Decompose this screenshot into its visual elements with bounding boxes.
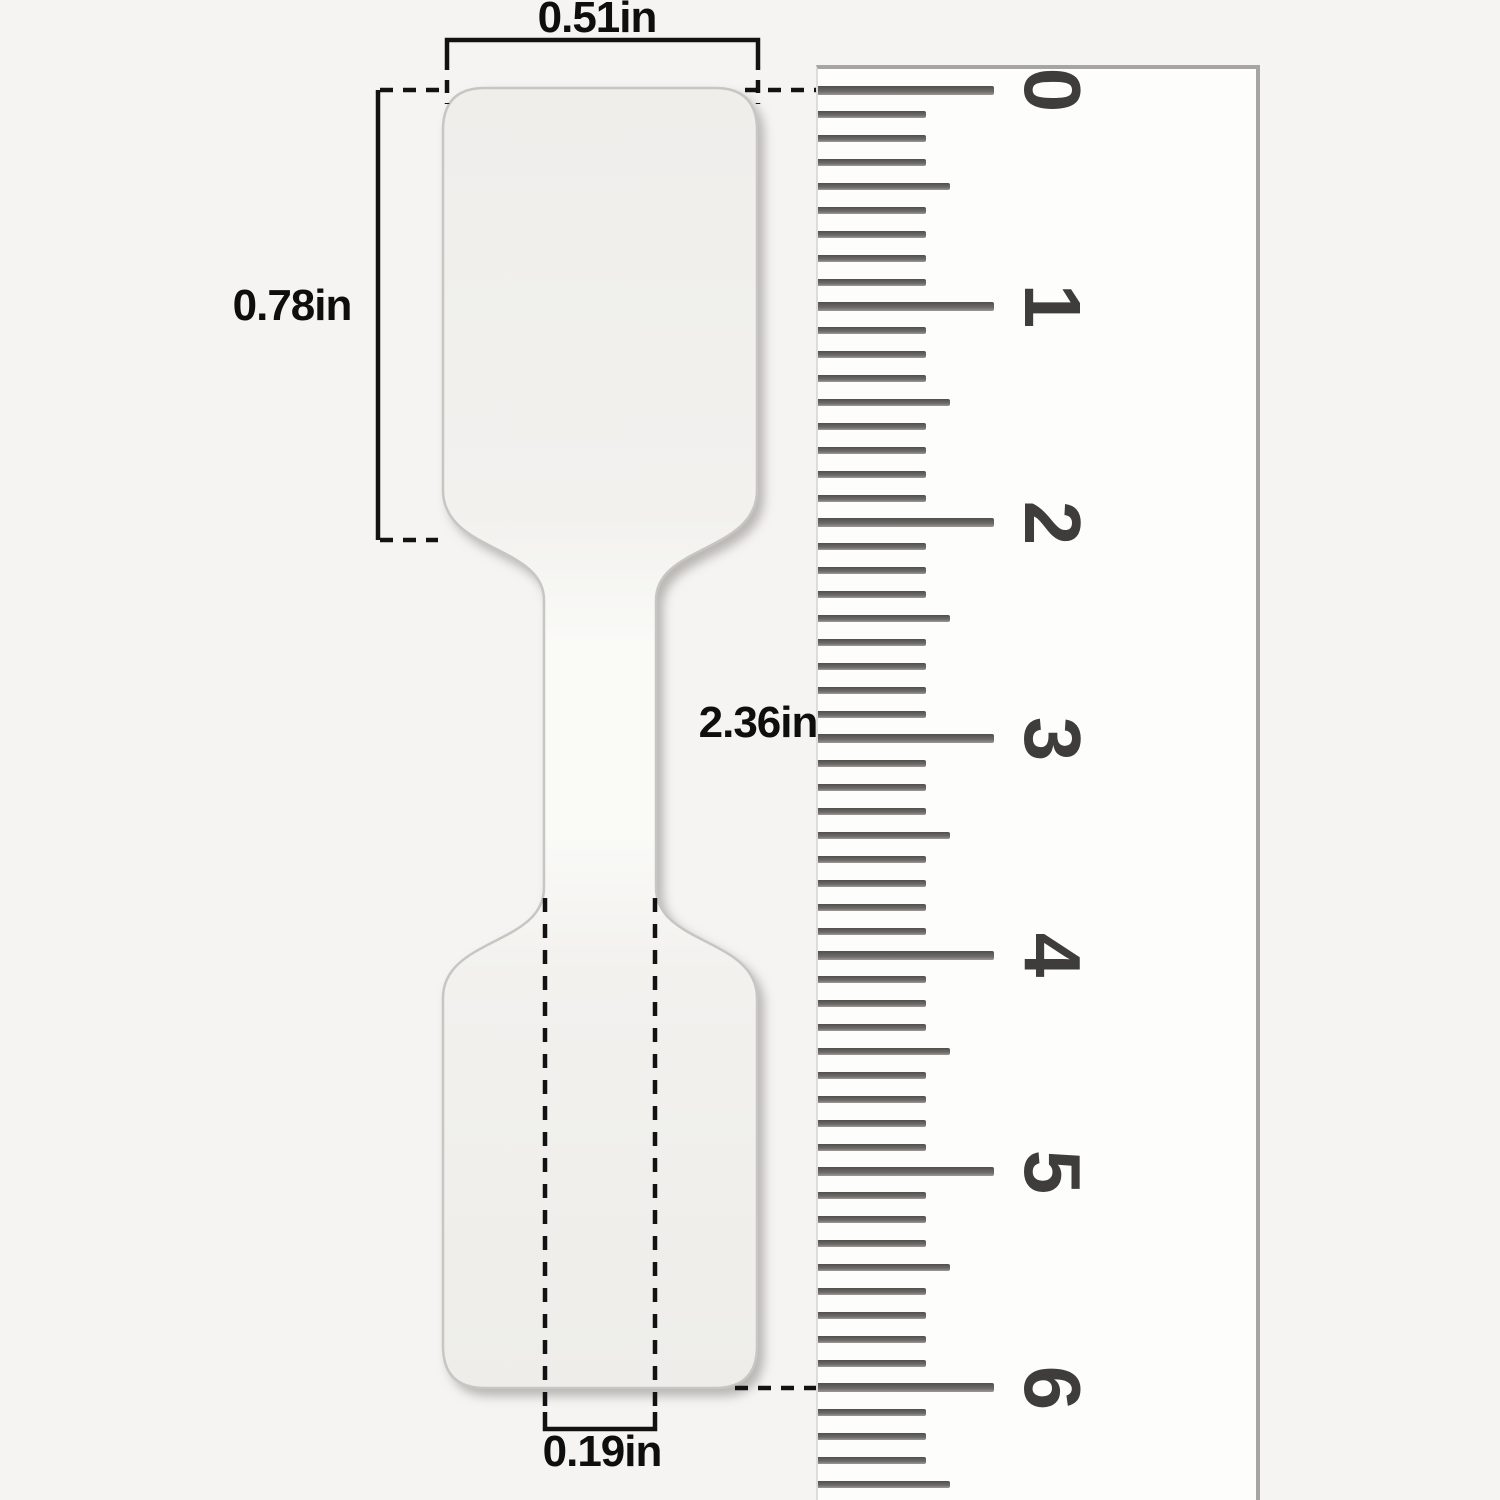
ruler-tick-short xyxy=(818,1288,926,1295)
ruler-tick-short xyxy=(818,495,926,502)
ruler-tick-short xyxy=(818,880,926,887)
ruler-tick-short xyxy=(818,856,926,863)
ruler-tick-short xyxy=(818,1120,926,1127)
ruler-tick-short xyxy=(818,543,926,550)
dim-label-left-height: 0.78in xyxy=(233,281,352,331)
ruler-tick-short xyxy=(818,1216,926,1223)
ruler-tick-short xyxy=(818,447,926,454)
ruler-number: 3 xyxy=(997,684,1107,794)
ruler-tick-short xyxy=(818,711,926,718)
ruler-tick-short xyxy=(818,1360,926,1367)
ruler-number: 2 xyxy=(997,468,1107,578)
ruler-tick-long xyxy=(818,951,994,960)
ruler-tick-short xyxy=(818,471,926,478)
ruler-scale: 0123456 xyxy=(818,69,1256,1500)
ruler-tick-short xyxy=(818,423,926,430)
ruler-tick-short xyxy=(818,231,926,238)
ruler-number: 4 xyxy=(997,900,1107,1010)
ruler-tick-medium xyxy=(818,1481,950,1488)
ruler-tick-short xyxy=(818,1336,926,1343)
ruler-tick-long xyxy=(818,302,994,311)
ruler-tick-short xyxy=(818,904,926,911)
ruler-number: 1 xyxy=(997,251,1107,361)
ruler-tick-short xyxy=(818,663,926,670)
ruler-tick-short xyxy=(818,1000,926,1007)
ruler-tick-long xyxy=(818,518,994,527)
ruler-tick-short xyxy=(818,1072,926,1079)
ruler-tick-short xyxy=(818,159,926,166)
ruler-tick-long xyxy=(818,734,994,743)
ruler-tick-short xyxy=(818,1024,926,1031)
ruler-tick-short xyxy=(818,207,926,214)
dim-label-top-width: 0.51in xyxy=(538,0,657,43)
ruler-tick-short xyxy=(818,1240,926,1247)
ruler-tick-short xyxy=(818,327,926,334)
ruler-number: 0 xyxy=(997,69,1107,145)
ruler-tick-medium xyxy=(818,399,950,406)
ruler-tick-short xyxy=(818,928,926,935)
ruler-tick-short xyxy=(818,1192,926,1199)
dim-label-bottom-width: 0.19in xyxy=(543,1427,662,1477)
ruler-tick-short xyxy=(818,591,926,598)
ruler-tick-short xyxy=(818,1144,926,1151)
ruler-tick-short xyxy=(818,567,926,574)
ruler-number: 6 xyxy=(997,1333,1107,1443)
ruler-tick-long xyxy=(818,86,994,95)
ruler-tick-short xyxy=(818,1457,926,1464)
ruler-tick-short xyxy=(818,1096,926,1103)
ruler-tick-short xyxy=(818,687,926,694)
ruler-tick-short xyxy=(818,351,926,358)
ruler-tick-medium xyxy=(818,832,950,839)
ruler-tick-medium xyxy=(818,615,950,622)
ruler-tick-short xyxy=(818,279,926,286)
ruler-tick-medium xyxy=(818,1264,950,1271)
ruler-tick-short xyxy=(818,784,926,791)
ruler-tick-short xyxy=(818,639,926,646)
ruler-tick-short xyxy=(818,760,926,767)
ruler: 0123456 xyxy=(816,65,1260,1500)
ruler-tick-short xyxy=(818,255,926,262)
ruler-tick-short xyxy=(818,808,926,815)
ruler-tick-long xyxy=(818,1167,994,1176)
ruler-tick-short xyxy=(818,976,926,983)
ruler-number: 5 xyxy=(997,1117,1107,1227)
ruler-tick-short xyxy=(818,1433,926,1440)
ruler-tick-short xyxy=(818,1312,926,1319)
ruler-tick-short xyxy=(818,111,926,118)
ruler-tick-short xyxy=(818,375,926,382)
ruler-tick-short xyxy=(818,135,926,142)
diagram-canvas xyxy=(0,0,1500,1500)
ruler-tick-short xyxy=(818,1409,926,1416)
ruler-tick-medium xyxy=(818,1048,950,1055)
ruler-tick-medium xyxy=(818,183,950,190)
measurement-diagram: 0123456 0.51in 0.78in 2.36in 0.19in xyxy=(0,0,1500,1500)
ruler-tick-long xyxy=(818,1383,994,1392)
dim-label-total-length: 2.36in xyxy=(699,698,818,748)
